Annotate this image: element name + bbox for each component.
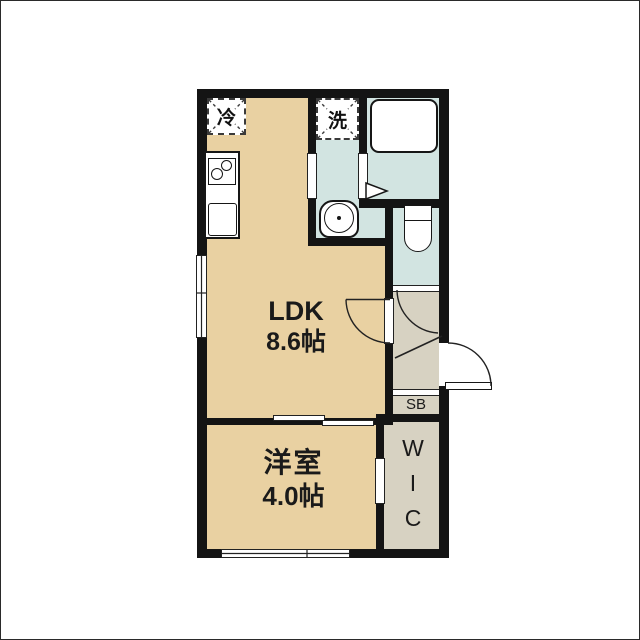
yoshitsu-room-label: 洋室 <box>236 448 351 478</box>
entry-door-swing-icon <box>448 343 491 386</box>
refrigerator-corner-dashes <box>209 100 244 133</box>
ldk-room-label: LDK <box>241 297 351 325</box>
wic-room-label: WIC <box>396 435 426 539</box>
shoebox-label: SB <box>393 397 439 413</box>
ldk-area-label: 8.6帖 <box>241 327 351 357</box>
ldk-door-swing-icon <box>346 300 390 344</box>
bathroom-door-marker-icon <box>366 183 387 199</box>
floorplan-canvas: 冷 洗 <box>0 0 640 640</box>
yoshitsu-area-label: 4.0帖 <box>236 481 351 511</box>
toilet-door-swing-icon <box>395 290 442 358</box>
washer-corner-dashes <box>318 100 357 138</box>
